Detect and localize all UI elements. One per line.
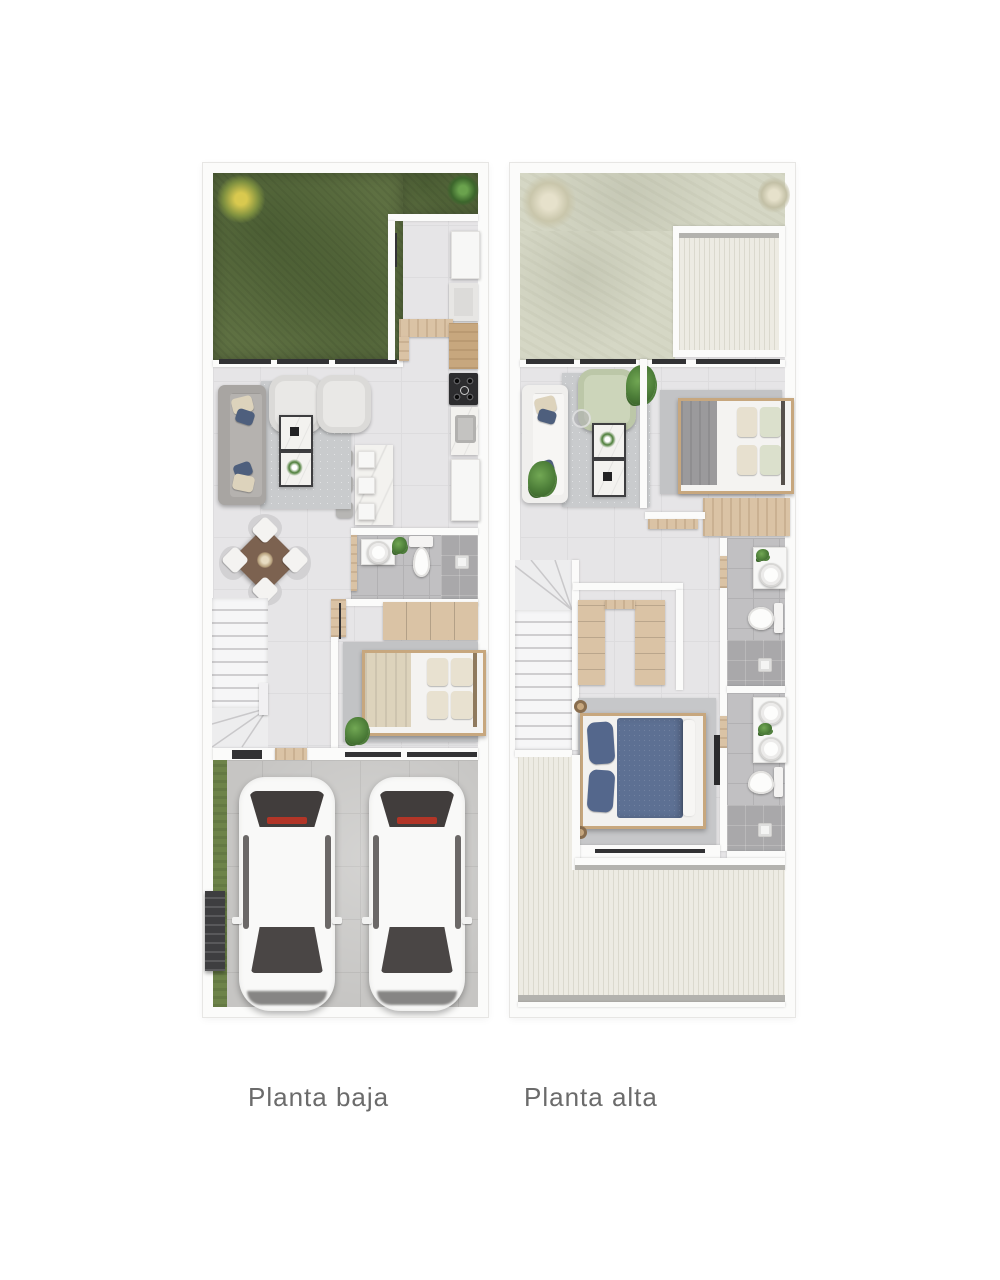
coffee-table [279, 415, 313, 451]
car-front-shadow [377, 991, 457, 1005]
bath-sink-icon [759, 701, 783, 725]
hall-bath-wall [720, 538, 727, 556]
kitchen-sink-2 [455, 415, 476, 443]
closet-shelf-bar [605, 600, 635, 609]
desk [703, 498, 790, 536]
hall-bath-wall [720, 588, 727, 716]
car-mirror-icon [362, 917, 372, 924]
floor-lamp-icon [572, 409, 591, 428]
bed-pillow [427, 691, 448, 719]
coffee-table [592, 459, 626, 497]
bed-pillow [451, 658, 473, 686]
bed-pillow [760, 407, 781, 437]
car-side-window [325, 835, 331, 929]
bed-pillow [760, 445, 781, 475]
roof-strip-wall [515, 750, 572, 757]
terrace-left [520, 231, 675, 360]
kitchen-door-leaf [395, 233, 397, 267]
bed-pillow-blue [587, 721, 616, 765]
car-mirror-icon [332, 917, 342, 924]
armchair [317, 375, 371, 433]
kitchen-bench [399, 319, 453, 337]
roof-gutter-bottom [518, 995, 785, 1002]
toilet-icon [748, 607, 774, 630]
bathroom-sink-icon [367, 541, 390, 564]
kitchen-wall-left [388, 221, 395, 360]
car-front-shadow [247, 991, 327, 1005]
window-frame-icon [652, 359, 686, 364]
shower-floor [727, 640, 785, 686]
car-brake-light-icon [267, 817, 307, 824]
master-bath-wall-bottom [727, 851, 785, 858]
bathroom-wall-top [351, 528, 478, 535]
utility-bin [205, 891, 225, 971]
plan-planta-baja [203, 163, 488, 1017]
car-side-window [243, 835, 249, 929]
shrub-icon [447, 175, 479, 205]
kitchen-bench-leg [399, 337, 409, 361]
toilet-tank-icon [774, 767, 783, 797]
window-frame-icon [526, 359, 574, 364]
burner-icon [466, 377, 474, 385]
car-windshield [251, 927, 323, 973]
toilet-icon [748, 771, 774, 794]
bed-blanket [365, 653, 411, 727]
flower-decor-icon [599, 431, 616, 448]
car-side-window [455, 835, 461, 929]
place-setting [358, 451, 375, 468]
hall-bath-wall [720, 748, 727, 851]
bedroom2-wall-bottom [645, 512, 705, 519]
car [239, 777, 335, 1011]
bedroom-door-leaf [339, 603, 341, 639]
bath-door-jamb [720, 716, 727, 748]
table-decor-icon [290, 427, 299, 436]
bath-divider-wall [727, 686, 785, 693]
stair-newel [259, 683, 268, 715]
bed-pillow [737, 445, 757, 475]
bed-2 [678, 398, 794, 494]
window-frame-icon [277, 359, 329, 364]
toilet-tank-icon [774, 603, 783, 633]
master-bed [580, 713, 706, 829]
car-side-window [373, 835, 379, 929]
stove-icon [449, 373, 478, 405]
floor-plan-sheet: Planta baja Planta alta [0, 0, 1000, 1280]
car-mirror-icon [462, 917, 472, 924]
entry-door-mat [232, 750, 262, 759]
closet-shelving [635, 600, 665, 685]
centerpiece-icon [257, 552, 273, 568]
closet [383, 602, 478, 640]
front-roof [679, 238, 779, 350]
bed-pillow-blue [587, 769, 616, 813]
place-setting [358, 477, 375, 494]
bath-sink-icon [759, 563, 783, 587]
yellow-plant-icon [217, 175, 265, 223]
closet-wall-right [676, 590, 683, 690]
bathroom-door-jamb [351, 535, 357, 591]
porch-step [275, 748, 307, 760]
pale-plant-icon [758, 177, 790, 213]
burner-icon [453, 377, 461, 385]
roof-strip-wall-right [572, 755, 580, 870]
place-setting [358, 503, 375, 520]
rear-roof [518, 870, 785, 995]
table-decor-icon [603, 472, 612, 481]
car-windshield [381, 927, 453, 973]
burner-icon [453, 393, 461, 401]
closet-wall-top [573, 583, 683, 590]
headboard [473, 653, 477, 727]
bedroom-window-sill [345, 752, 401, 757]
caption-planta-baja: Planta baja [248, 1082, 389, 1113]
window-frame-icon [219, 359, 271, 364]
car-mirror-icon [232, 917, 242, 924]
stove-knob-icon [460, 386, 469, 395]
refrigerator [451, 231, 480, 279]
master-window-sill [595, 849, 705, 853]
bath-sink-icon [759, 737, 783, 761]
toilet-tank-icon [409, 536, 433, 547]
bed-pillow [451, 691, 473, 719]
wall-tv-icon [714, 735, 720, 785]
bedroom-window-sill [407, 752, 477, 757]
flower-decor-icon [286, 459, 303, 476]
burner-icon [466, 393, 474, 401]
dining-set [217, 512, 313, 608]
caption-planta-alta: Planta alta [524, 1082, 658, 1113]
kitchen-sink-counter [449, 283, 478, 321]
bedroom2-wall-left [640, 359, 647, 508]
plan-planta-alta [510, 163, 795, 1017]
coffee-table [279, 451, 313, 487]
sofa [218, 385, 266, 505]
shower-valve-icon [758, 658, 772, 672]
bed-pillow [737, 407, 757, 437]
kitchen-wall-top [388, 214, 478, 221]
side-roof [518, 757, 572, 870]
nightstand-icon [574, 700, 587, 713]
pale-plant-icon [522, 175, 576, 229]
shower-valve-icon [455, 555, 469, 569]
kitchen-cabinet [449, 323, 478, 369]
bath-door-jamb [720, 556, 727, 588]
window-frame-icon [580, 359, 636, 364]
shower-valve-icon [758, 823, 772, 837]
toilet-icon [413, 547, 430, 577]
window-frame-icon [696, 359, 780, 364]
car-brake-light-icon [397, 817, 437, 824]
bedroom2-door-threshold [648, 519, 698, 529]
bed-pillow [427, 658, 448, 686]
kitchen-lower-cabinet [451, 459, 480, 521]
shower-floor [727, 805, 785, 851]
headboard [781, 401, 785, 485]
car [369, 777, 465, 1011]
bed [362, 650, 486, 736]
closet-shelving [578, 600, 605, 685]
folded-sheet [683, 720, 695, 816]
stairs [515, 610, 572, 750]
stairs-winders [515, 560, 572, 610]
coffee-table [592, 423, 626, 459]
bedroom-wall-left [331, 637, 338, 748]
rear-roof-edge [518, 1002, 785, 1007]
duvet-blue [617, 718, 683, 818]
bed2-blanket [681, 401, 717, 485]
